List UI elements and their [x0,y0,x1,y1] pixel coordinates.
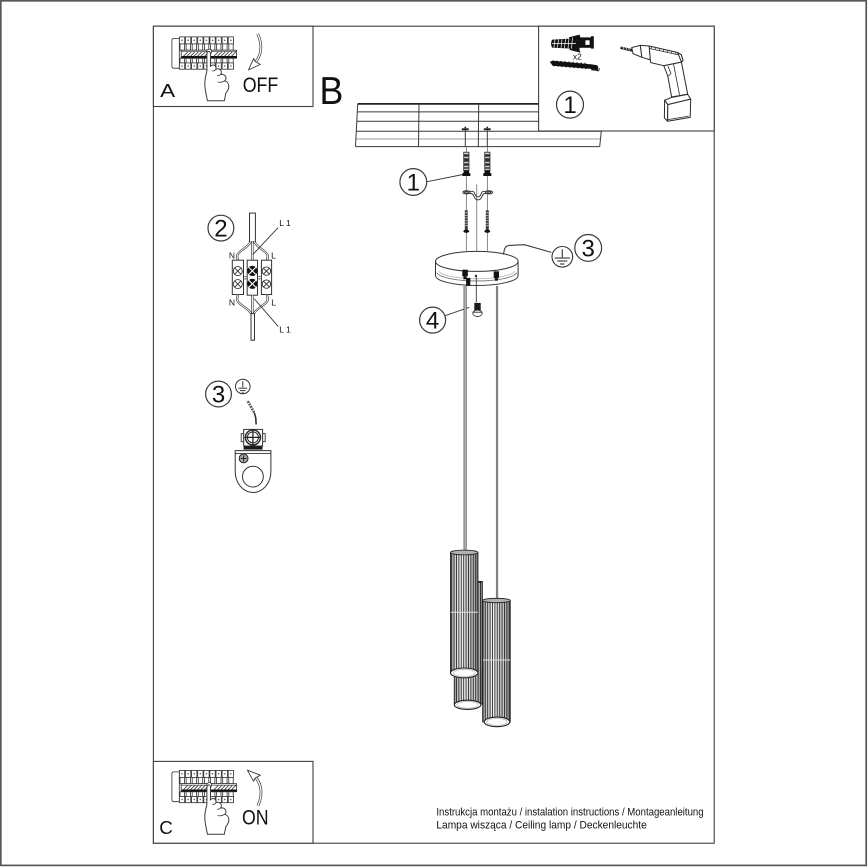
svg-text:4: 4 [426,308,439,335]
svg-text:Instrukcja montażu / instalati: Instrukcja montażu / instalation instruc… [436,807,703,819]
svg-text:3: 3 [212,382,225,409]
svg-text:C: C [159,817,173,838]
svg-text:1: 1 [407,170,420,197]
svg-text:L 1: L 1 [279,218,291,228]
svg-text:Lampa wisząca / Ceiling lamp /: Lampa wisząca / Ceiling lamp / Deckenleu… [436,819,646,831]
svg-text:1: 1 [563,92,576,119]
svg-text:B: B [320,70,344,113]
svg-text:ON: ON [242,806,269,829]
svg-text:N: N [229,251,235,261]
svg-text:N: N [229,298,235,308]
svg-text:x2: x2 [573,52,582,61]
svg-text:3: 3 [582,236,595,263]
svg-text:L: L [271,298,276,308]
svg-text:L 1: L 1 [279,324,291,334]
svg-text:L: L [271,251,276,261]
svg-text:OFF: OFF [243,73,279,97]
svg-text:A: A [160,80,176,101]
svg-text:2: 2 [214,216,227,243]
